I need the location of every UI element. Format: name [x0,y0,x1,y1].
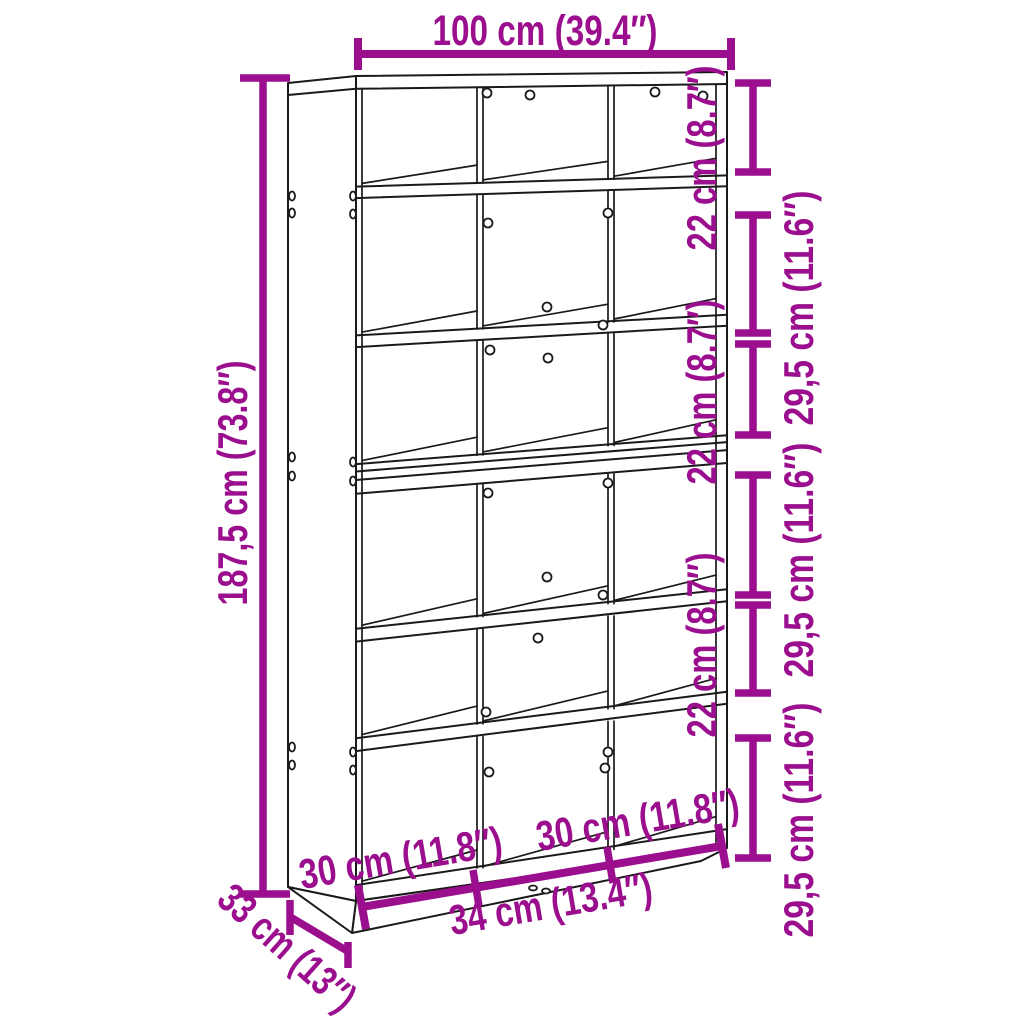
dim-height-label: 187,5 cm (73.8″) [209,361,256,606]
dim-overall-width: 100 cm (39.4″) [358,7,731,70]
dim-overall-height: 187,5 cm (73.8″) [209,78,290,894]
diagram-canvas: 100 cm (39.4″) 187,5 cm (73.8″) 22 cm (8… [0,0,1024,1024]
dim-shelf-4-label: 29,5 cm (11.6″) [775,443,822,678]
dimension-diagram: 100 cm (39.4″) 187,5 cm (73.8″) 22 cm (8… [0,0,1024,1024]
dim-shelf-6-label: 29,5 cm (11.6″) [775,703,822,938]
dim-shelf-2-label: 29,5 cm (11.6″) [775,191,822,426]
dim-shelf-1-label: 22 cm (8.7″) [678,66,725,251]
dim-shelf-3-label: 22 cm (8.7″) [678,300,725,485]
dim-width-label: 100 cm (39.4″) [433,7,658,55]
dim-shelf-5-label: 22 cm (8.7″) [678,553,725,738]
